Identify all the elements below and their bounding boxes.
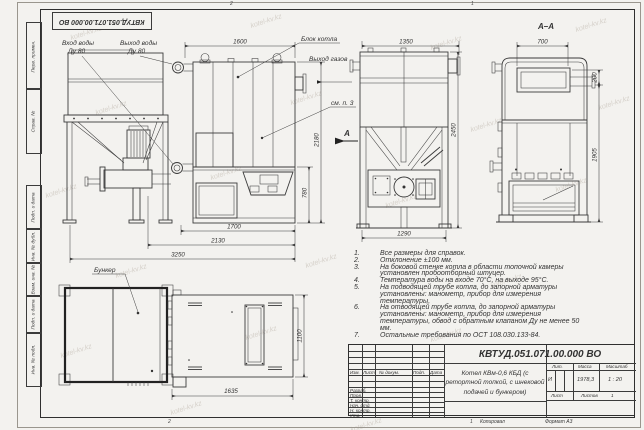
dim-section-small: 200 — [592, 72, 599, 84]
dim-front-b3: 3250 — [171, 252, 185, 259]
dim-plan-right: 1100 — [297, 329, 304, 343]
section-title-label: А–А — [537, 22, 554, 31]
drawing-sheet: kotel-kv.kz kotel-kv.kz kotel-kv.kz kote… — [0, 0, 644, 430]
water-outlet-dn: Ду 80 — [127, 48, 146, 55]
tb-doc-number: КВТУД.051.071.00.000 ВО — [444, 349, 636, 360]
tb-sheets-label: Листов — [581, 393, 598, 398]
side-view — [350, 48, 460, 228]
note-number: 3. — [352, 265, 380, 279]
see-note-label: см. п. 3 — [331, 100, 354, 107]
tb-lit-label: Лит. — [552, 364, 563, 369]
water-inlet-label: Вход воды — [62, 39, 94, 47]
tb-col-list: Лист — [363, 370, 375, 375]
tb-mass-value: 1978,3 — [577, 377, 594, 383]
dim-front-top: 1600 — [233, 39, 247, 46]
note-number: 5. — [352, 285, 380, 305]
side-view-dimensions: 1350 2450 1290 — [362, 39, 462, 243]
notes-list: 1.Все размеры для справок. 2.Отклонение … — [352, 251, 602, 339]
tb-row-utv: Утв. — [350, 413, 360, 418]
gas-outlet-label: Выход газов — [309, 55, 348, 63]
tb-col-dokum: № докум. — [379, 370, 399, 375]
note-text: На отводящей трубе котла, до запорной ар… — [380, 305, 592, 332]
tb-mass-label: Масса — [578, 364, 592, 369]
copied-label: Копировал — [480, 419, 505, 425]
tb-lit-value: И — [548, 377, 552, 383]
boiler-block-label: Блок котла — [301, 36, 337, 43]
front-view-dimensions: 1600 2180 780 1700 2130 3250 — [70, 39, 325, 264]
plan-view — [59, 285, 298, 387]
dim-side-top: 1350 — [399, 39, 413, 46]
note-item: 7.Остальные требования по ОСТ 108.030.13… — [352, 333, 602, 340]
water-inlet-dn: Ду 80 — [67, 48, 86, 55]
plan-dimensions: 1635 1100 — [172, 295, 308, 400]
water-outlet-label: Выход воды — [120, 39, 157, 47]
bunker-label: Бункер — [94, 267, 116, 274]
note-number: 6. — [352, 305, 380, 332]
note-item: 5.На подводящей трубе котла, до запорной… — [352, 285, 602, 305]
dim-section-top: 700 — [537, 39, 548, 46]
note-item: 6.На отводящей трубе котла, до запорной … — [352, 305, 602, 332]
dim-plan-bottom: 1635 — [224, 388, 238, 395]
tb-col-data: Дата — [430, 370, 442, 375]
format-label: Формат А3 — [545, 419, 572, 425]
dim-front-lower: 780 — [302, 187, 309, 198]
title-block: Изм. Лист № докум. Подп. Дата Разраб. Пр… — [348, 344, 635, 416]
tb-scale-value: 1 : 20 — [608, 377, 622, 383]
tb-col-izm: Изм. — [350, 370, 360, 375]
tb-item-name: Котел КВм-0,6 КБД (с ретортной топкой, с… — [445, 365, 545, 401]
dim-section-right: 1905 — [592, 148, 599, 162]
tb-scale-label: Масштаб — [606, 364, 627, 369]
tb-sheets-count: 1 — [611, 393, 614, 398]
tb-sheet-label: Лист — [551, 393, 563, 398]
callouts: Вход воды Ду 80 Выход воды Ду 80 Блок ко… — [62, 36, 358, 314]
dim-side-right: 2450 — [451, 123, 458, 138]
section-view — [490, 58, 595, 222]
dim-front-b2: 2130 — [210, 238, 225, 245]
tb-col-podp: Подп. — [413, 370, 425, 375]
note-number: 7. — [352, 333, 380, 340]
note-text: На подводящей трубе котла, до запорной а… — [380, 285, 592, 305]
note-text: Остальные требования по ОСТ 108.030.133-… — [380, 333, 592, 340]
view-arrow-label: А — [343, 129, 350, 138]
dim-side-bottom: 1290 — [397, 231, 411, 238]
dim-front-b1: 1700 — [227, 224, 241, 231]
dim-front-height: 2180 — [314, 133, 321, 148]
front-view — [63, 50, 306, 223]
